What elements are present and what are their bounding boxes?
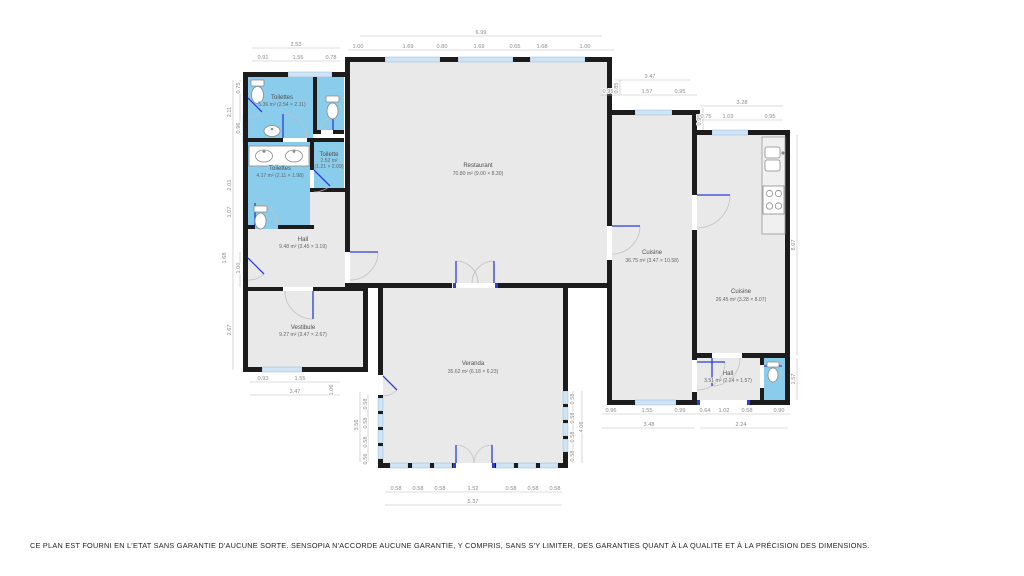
room-label-hall-2-details: 3.51 m² (2.24 × 1.57) <box>704 378 752 384</box>
dim-label: 0.58 <box>413 486 424 492</box>
dim-label: 1.00 <box>580 44 591 50</box>
dim-label: 0.58 <box>570 394 576 405</box>
double-sink-counter <box>249 146 309 166</box>
dim-label: 0.58 <box>742 408 753 414</box>
dim-label: 1.69 <box>403 44 414 50</box>
dim-label: 1.57 <box>642 89 653 95</box>
room-label-restaurant-details: 70.80 m² (9.00 × 8.30) <box>453 171 504 177</box>
room-label-vestibule-details: 9.27 m² (3.47 × 2.67) <box>279 332 327 338</box>
dim-label: 0.58 <box>363 437 369 448</box>
dim-label: 1.06 <box>329 385 335 396</box>
room-label-veranda: Veranda <box>462 361 485 367</box>
dim-label: 1.00 <box>353 44 364 50</box>
dim-label: 0.58 <box>363 418 369 429</box>
dim-label: 0.95 <box>603 89 614 95</box>
room-label-cuisine-1: Cuisine <box>642 250 663 256</box>
kitchen-counter <box>762 137 785 234</box>
room-label-restaurant: Restaurant <box>463 163 493 169</box>
dim-label: 6.99 <box>476 30 487 36</box>
room-label-vestibule: Vestibule <box>291 325 316 331</box>
dim-label: 1.02 <box>719 408 730 414</box>
room-label-toilette-3-details-2: (1.21 × 2.09) <box>314 164 343 170</box>
room-areas <box>248 62 785 463</box>
room-label-veranda-details: 35.62 m² (6.18 × 6.23) <box>448 369 499 375</box>
dim-label: 1.68 <box>537 44 548 50</box>
room-label-cuisine-2: Cuisine <box>731 289 752 295</box>
dim-label: 0.58 <box>391 486 402 492</box>
room-label-toilettes-2-details: 4.17 m² (2.11 × 1.98) <box>256 173 304 179</box>
dim-label: 0.78 <box>326 55 337 61</box>
dim-label: 2.24 <box>736 422 747 428</box>
dim-label: 0.93 <box>258 376 269 382</box>
dim-label: 0.58 <box>363 399 369 410</box>
room-label-toilettes-1: Toilettes <box>271 95 293 101</box>
dim-label: 1.55 <box>295 376 306 382</box>
dim-label: 1.55 <box>642 408 653 414</box>
room-area-veranda <box>383 288 563 463</box>
dim-label: 0.58 <box>550 486 561 492</box>
dim-label: 0.85 <box>614 83 620 94</box>
room-label-hall: Hall <box>298 237 308 243</box>
stove-icon <box>763 186 784 214</box>
dim-label: 3.47 <box>290 389 301 395</box>
toilet-icon <box>254 206 267 229</box>
dim-label: 0.91 <box>258 55 269 61</box>
dim-label: 0.80 <box>437 44 448 50</box>
dim-label: 2.53 <box>291 42 302 48</box>
toilet-icon <box>326 96 339 119</box>
dim-label: 0.96 <box>236 123 242 134</box>
room-label-hall-2: Hall <box>723 371 733 377</box>
dim-label: 1.52 <box>468 486 479 492</box>
dim-label: 0.58 <box>570 451 576 462</box>
room-label-toilettes-2: Toilettes <box>269 166 291 172</box>
dim-label: 0.64 <box>700 408 711 414</box>
toilet-icon <box>767 362 779 382</box>
floor-plan-svg: 2.53 0.91 1.55 0.78 6.99 1.00 1.69 0.80 … <box>0 0 1024 576</box>
sink-icon <box>264 126 280 137</box>
dim-label: 0.58 <box>435 486 446 492</box>
dim-label: 2.67 <box>227 325 233 336</box>
dim-label: 1.57 <box>791 374 797 385</box>
dim-label: 2.11 <box>227 107 233 117</box>
dim-label: 0.90 <box>774 408 785 414</box>
dim-label: 3.48 <box>644 422 655 428</box>
dim-label: 4.06 <box>579 422 585 433</box>
toilet-icon <box>251 80 264 104</box>
dim-label: 3.28 <box>737 100 748 106</box>
dim-label: 1.69 <box>474 44 485 50</box>
dim-label: 0.96 <box>606 408 617 414</box>
dim-label: 0.75 <box>236 83 242 94</box>
dim-label: 8.07 <box>791 240 797 251</box>
dim-label: 5.37 <box>468 499 479 505</box>
dim-label: 1.03 <box>723 114 734 120</box>
disclaimer-text: CE PLAN EST FOURNI EN L'ETAT SANS GARANT… <box>30 541 870 550</box>
dim-label: 0.65 <box>510 44 521 50</box>
dim-label: 3.47 <box>645 74 656 80</box>
room-label-toilettes-1-details: 5.36 m² (2.54 × 2.11) <box>258 102 306 108</box>
room-label-hall-details: 9.48 m² (3.45 × 3.19) <box>279 244 327 250</box>
room-label-cuisine-1-details: 36.75 m² (3.47 × 10.58) <box>625 258 679 264</box>
dim-label: 1.68 <box>222 253 228 264</box>
dim-label: 3.56 <box>354 420 360 431</box>
dim-label: 0.58 <box>528 486 539 492</box>
dim-label: 0.95 <box>675 89 686 95</box>
floor-plan-page: 2.53 0.91 1.55 0.78 6.99 1.00 1.69 0.80 … <box>0 0 1024 576</box>
dim-label: 0.99 <box>675 408 686 414</box>
dim-label: 0.58 <box>506 486 517 492</box>
dim-label: 0.95 <box>765 114 776 120</box>
dim-label: 1.07 <box>227 207 233 218</box>
dim-label: 0.75 <box>701 114 712 120</box>
dim-label: 2.01 <box>227 180 233 191</box>
dim-label: 1.55 <box>293 55 304 61</box>
dim-label: 0.58 <box>570 432 576 443</box>
room-label-cuisine-2-details: 26.45 m² (3.28 × 8.07) <box>716 297 767 303</box>
dim-label: 0.56 <box>363 454 369 465</box>
dim-label: 0.58 <box>570 413 576 424</box>
dim-label: 1.00 <box>236 263 242 274</box>
